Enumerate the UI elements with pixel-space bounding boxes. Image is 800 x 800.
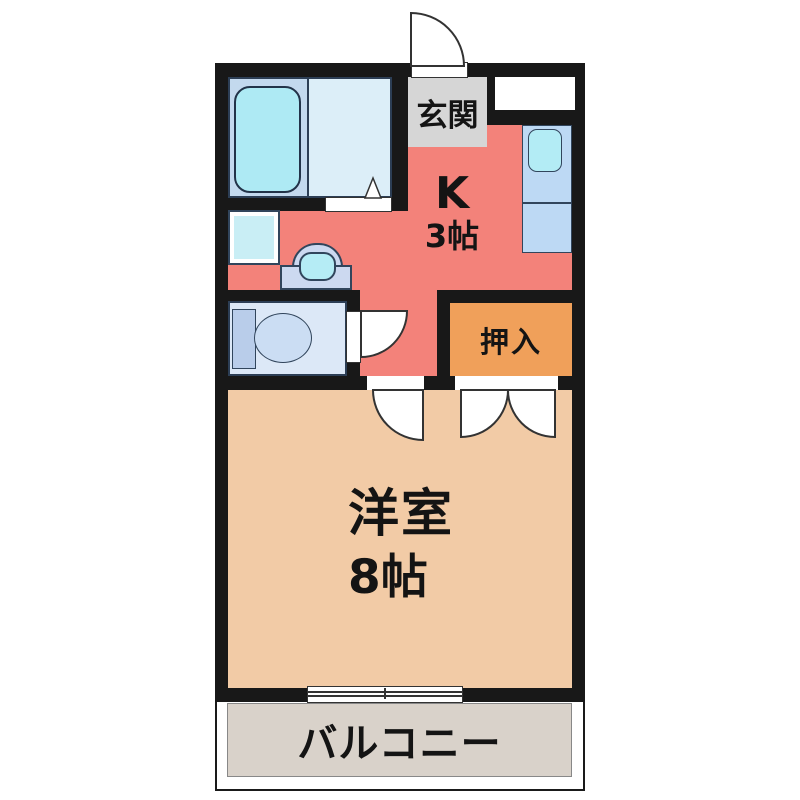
wall (437, 290, 572, 303)
toilet-tank-fixture (232, 309, 256, 369)
kitchen-size-label: 3帖 (425, 218, 479, 254)
kitchen-sink-fixture (528, 129, 562, 172)
wall (227, 376, 367, 390)
entrance-door-threshold (411, 62, 468, 78)
window (495, 77, 575, 110)
toilet-door-leaf (346, 311, 361, 363)
changing-area (308, 77, 392, 198)
window-latch-mark (384, 688, 386, 699)
balcony-label: バルコニー (227, 703, 572, 777)
closet-door-opening (455, 376, 558, 390)
wall (215, 290, 360, 301)
kitchen-door-opening (367, 376, 424, 390)
western-room-label-group: 洋室 8帖 (348, 486, 578, 604)
entrance-door-swing (411, 13, 464, 66)
western-room-size-label: 8帖 (348, 552, 428, 604)
closet-label: 押入 (450, 303, 572, 376)
wall (572, 63, 585, 702)
wash-basin-bowl (299, 252, 336, 281)
floor-plan: 玄関 K 3帖 押入 洋室 8帖 バルコニー (0, 0, 800, 800)
kitchen-label: K (435, 170, 469, 218)
washing-machine-fixture (230, 212, 278, 263)
bathtub-fixture (234, 86, 301, 193)
wall (437, 290, 450, 390)
bathroom-door-threshold (325, 197, 392, 212)
kitchen-label-group: K 3帖 (392, 170, 512, 254)
wall (558, 376, 573, 390)
western-room-label: 洋室 (348, 486, 454, 544)
kitchen-counter-divider (522, 202, 572, 204)
toilet-bowl-fixture (254, 313, 312, 363)
balcony-window (307, 686, 463, 703)
entrance-label: 玄関 (408, 77, 487, 147)
